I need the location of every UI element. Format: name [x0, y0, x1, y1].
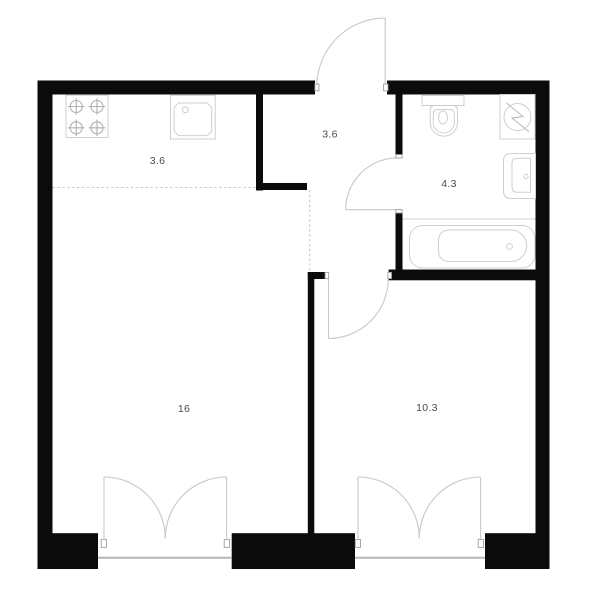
- svg-text:3.6: 3.6: [150, 155, 166, 167]
- svg-text:3.6: 3.6: [322, 129, 338, 141]
- svg-text:16: 16: [178, 403, 190, 415]
- svg-text:10.3: 10.3: [416, 402, 438, 414]
- svg-text:4.3: 4.3: [441, 178, 457, 190]
